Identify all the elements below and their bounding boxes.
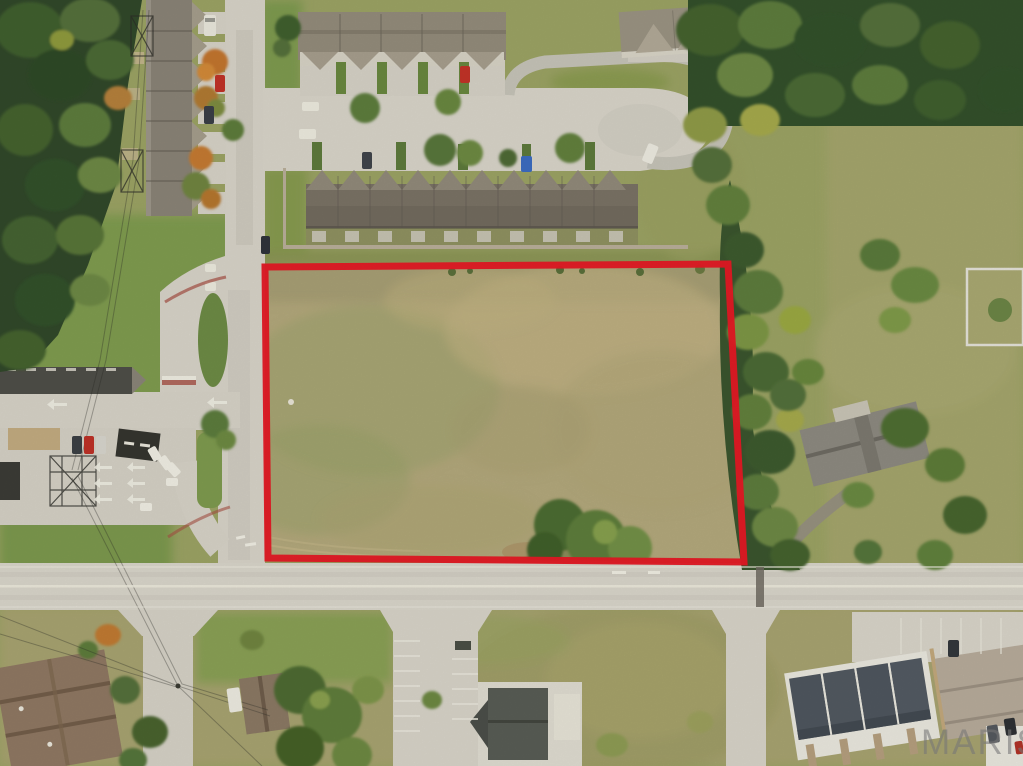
- maris-watermark: MARIS: [921, 723, 1023, 763]
- photo-grain: [0, 0, 1023, 766]
- aerial-photo-canvas: [0, 0, 1023, 766]
- aerial-photo: MARIS: [0, 0, 1023, 766]
